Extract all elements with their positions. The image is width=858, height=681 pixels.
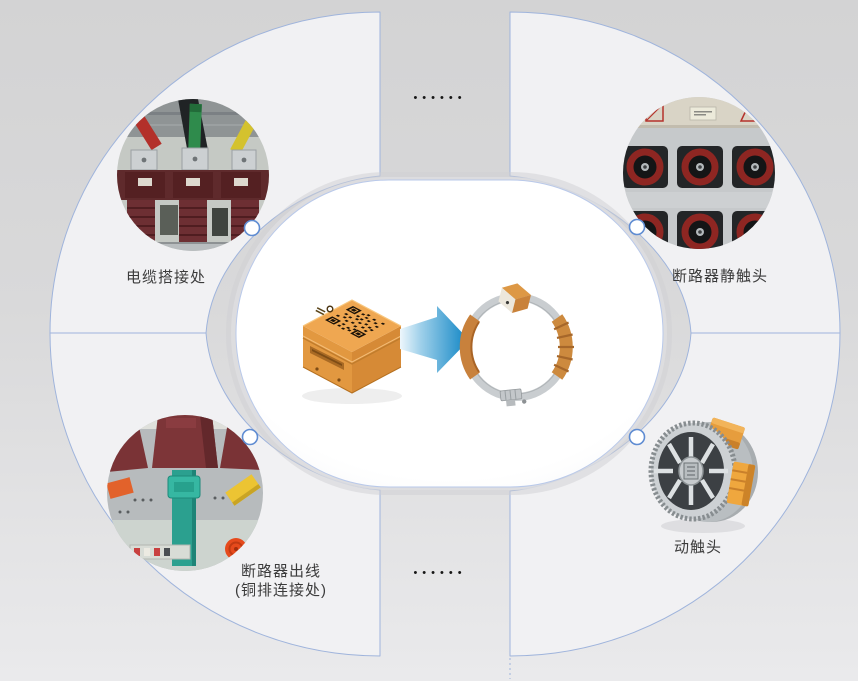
label-breaker-outlet: 断路器出线 (铜排连接处) xyxy=(211,562,351,600)
label-breaker-outlet-line1: 断路器出线 xyxy=(211,562,351,581)
dots-separator-top: •••••• xyxy=(405,91,475,105)
node-top-right xyxy=(630,220,645,235)
photo-breaker-outlet xyxy=(106,415,263,571)
label-breaker-static-contact: 断路器静触头 xyxy=(650,267,790,286)
label-breaker-outlet-line2: (铜排连接处) xyxy=(211,581,351,600)
node-bottom-left xyxy=(243,430,258,445)
dots-separator-bottom: •••••• xyxy=(405,566,475,580)
installation-diagram: •••••• •••••• 电缆搭接处 断路器静触头 断路器出线 (铜排连接处)… xyxy=(0,0,858,681)
label-moving-contact: 动触头 xyxy=(628,538,768,557)
node-bottom-right xyxy=(630,430,645,445)
label-cable-joint: 电缆搭接处 xyxy=(96,268,236,287)
node-top-left xyxy=(245,221,260,236)
